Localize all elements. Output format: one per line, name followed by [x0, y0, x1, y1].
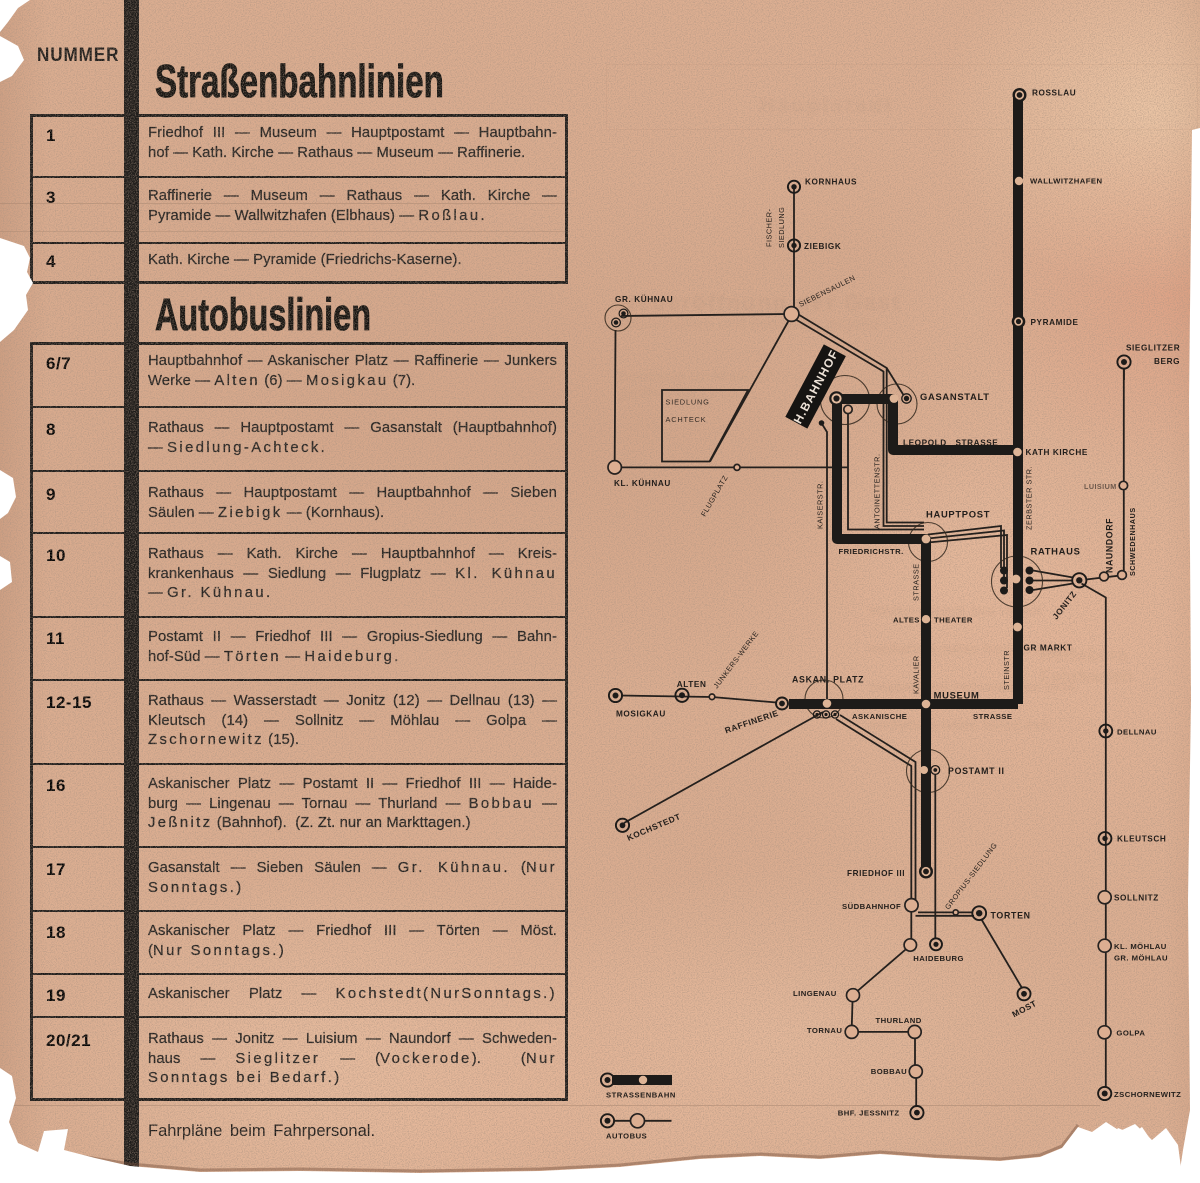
- svg-text:ASKANISCHE: ASKANISCHE: [852, 712, 907, 721]
- svg-text:SIEDLUNG: SIEDLUNG: [777, 207, 786, 248]
- svg-text:ROSSLAU: ROSSLAU: [1032, 89, 1076, 98]
- svg-text:SCHWEDENHAUS: SCHWEDENHAUS: [1129, 507, 1137, 576]
- svg-text:STEINSTR: STEINSTR: [1002, 650, 1011, 690]
- svg-text:LINGENAU: LINGENAU: [793, 989, 837, 998]
- svg-text:STRASSE: STRASSE: [956, 439, 999, 448]
- svg-text:MOSIGKAU: MOSIGKAU: [616, 710, 666, 719]
- svg-text:SOLLNITZ: SOLLNITZ: [1114, 894, 1159, 903]
- svg-text:ASKAN. PLATZ: ASKAN. PLATZ: [792, 675, 864, 685]
- svg-text:LEOPOLD: LEOPOLD: [903, 439, 947, 448]
- svg-text:BOBBAU: BOBBAU: [871, 1067, 907, 1076]
- svg-text:KL. KÜHNAU: KL. KÜHNAU: [614, 478, 671, 488]
- svg-text:SIEDLUNG: SIEDLUNG: [666, 398, 710, 407]
- svg-text:BHF. JESSNITZ: BHF. JESSNITZ: [838, 1109, 900, 1118]
- svg-text:ALTEN: ALTEN: [677, 680, 707, 689]
- svg-text:BERG: BERG: [1154, 357, 1180, 366]
- svg-text:THEATER: THEATER: [934, 616, 973, 625]
- svg-text:ZERBSTER STR.: ZERBSTER STR.: [1025, 466, 1034, 530]
- svg-text:POSTAMT II: POSTAMT II: [948, 766, 1005, 776]
- svg-text:GASANSTALT: GASANSTALT: [920, 391, 990, 402]
- svg-text:TORNAU: TORNAU: [807, 1026, 842, 1035]
- svg-text:STRASSE: STRASSE: [973, 712, 1012, 721]
- svg-text:THURLAND: THURLAND: [876, 1016, 922, 1025]
- svg-text:ZSCHORNEWITZ: ZSCHORNEWITZ: [1114, 1090, 1181, 1099]
- svg-text:ALTES: ALTES: [893, 616, 920, 625]
- svg-text:PYRAMIDE: PYRAMIDE: [1031, 318, 1079, 327]
- svg-text:FISCHER-: FISCHER-: [765, 208, 774, 247]
- svg-text:SÜDBAHNHOF: SÜDBAHNHOF: [842, 902, 901, 911]
- svg-text:TORTEN: TORTEN: [991, 911, 1031, 921]
- svg-text:WALLWITZHAFEN: WALLWITZHAFEN: [1030, 177, 1102, 186]
- svg-text:GR MARKT: GR MARKT: [1024, 644, 1073, 653]
- svg-text:KATH KIRCHE: KATH KIRCHE: [1026, 448, 1088, 457]
- svg-text:RATHAUS: RATHAUS: [1031, 546, 1081, 557]
- svg-text:STRASSE: STRASSE: [912, 563, 921, 601]
- svg-text:FRIEDHOF III: FRIEDHOF III: [847, 869, 905, 878]
- svg-text:SIEGLITZER: SIEGLITZER: [1126, 344, 1180, 353]
- svg-text:AUTOBUS: AUTOBUS: [606, 1132, 647, 1141]
- svg-text:GR. MÖHLAU: GR. MÖHLAU: [1114, 954, 1168, 963]
- svg-text:DELLNAU: DELLNAU: [1117, 728, 1157, 737]
- svg-text:FRIEDRICHSTR.: FRIEDRICHSTR.: [839, 547, 904, 556]
- svg-text:HAUPTPOST: HAUPTPOST: [926, 509, 990, 520]
- svg-text:STRASSENBAHN: STRASSENBAHN: [606, 1091, 676, 1100]
- svg-text:KAVALIER: KAVALIER: [912, 655, 921, 694]
- svg-text:ZIEBIGK: ZIEBIGK: [804, 242, 841, 251]
- svg-text:MUSEUM: MUSEUM: [934, 690, 980, 701]
- svg-text:KL. MÖHLAU: KL. MÖHLAU: [1114, 942, 1167, 951]
- svg-text:KAISERSTR.: KAISERSTR.: [816, 481, 825, 529]
- svg-text:KLEUTSCH: KLEUTSCH: [1117, 835, 1166, 844]
- svg-text:KORNHAUS: KORNHAUS: [805, 178, 857, 187]
- svg-text:NAUNDORF: NAUNDORF: [1105, 518, 1115, 573]
- svg-text:HAIDEBURG: HAIDEBURG: [913, 954, 964, 963]
- svg-text:GOLPA: GOLPA: [1116, 1029, 1145, 1038]
- svg-text:ACHTECK: ACHTECK: [666, 415, 707, 424]
- svg-text:ANTOINETTENSTR.: ANTOINETTENSTR.: [873, 454, 882, 529]
- svg-text:GR. KÜHNAU: GR. KÜHNAU: [615, 294, 673, 304]
- svg-text:LUISIUM: LUISIUM: [1084, 482, 1117, 491]
